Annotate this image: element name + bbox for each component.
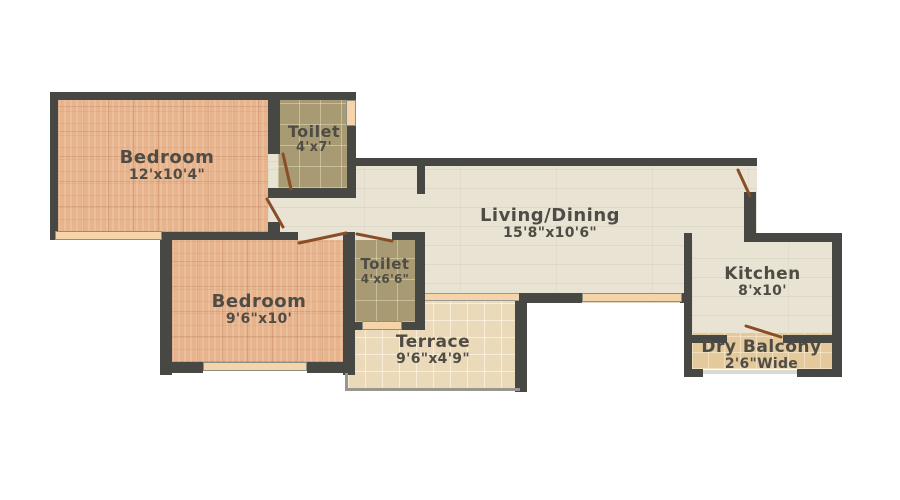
room-name: Living/Dining [400, 206, 700, 226]
bedroom-1-label: Bedroom 12'x10'4" [62, 148, 272, 183]
room-dimensions: 15'8"x10'6" [400, 226, 700, 241]
room-name: Bedroom [175, 292, 343, 312]
toilet-2-label: Toilet 4'x6'6" [352, 256, 418, 286]
room-dimensions: 9'6"x4'9" [352, 352, 514, 367]
door-swing-dry-balcony [746, 326, 781, 337]
room-name: Dry Balcony [688, 338, 835, 357]
door-swing-bedroom-1 [283, 154, 291, 189]
kitchen-label: Kitchen 8'x10' [694, 265, 831, 299]
living-dining-label: Living/Dining 15'8"x10'6" [400, 206, 700, 241]
door-swing-toilet-2 [357, 234, 392, 241]
door-swing-toilet-1 [267, 199, 283, 227]
room-dimensions: 2'6"Wide [688, 357, 835, 372]
room-dimensions: 4'x6'6" [352, 273, 418, 286]
terrace-label: Terrace 9'6"x4'9" [352, 333, 514, 367]
toilet-1-label: Toilet 4'x7' [277, 123, 351, 155]
room-name: Terrace [352, 333, 514, 352]
dry-balcony-label: Dry Balcony 2'6"Wide [688, 338, 835, 372]
room-name: Toilet [277, 123, 351, 141]
room-dimensions: 9'6"x10' [175, 312, 343, 327]
room-name: Kitchen [694, 265, 831, 284]
door-overlay [0, 0, 900, 500]
room-dimensions: 4'x7' [277, 141, 351, 155]
room-name: Bedroom [62, 148, 272, 168]
door-swing-bedroom-2 [299, 233, 346, 243]
floor-plan: Bedroom 12'x10'4" Toilet 4'x7' Living/Di… [0, 0, 900, 500]
room-dimensions: 8'x10' [694, 284, 831, 299]
door-swing-entrance [738, 170, 750, 196]
bedroom-2-label: Bedroom 9'6"x10' [175, 292, 343, 327]
room-name: Toilet [352, 256, 418, 273]
room-dimensions: 12'x10'4" [62, 168, 272, 183]
